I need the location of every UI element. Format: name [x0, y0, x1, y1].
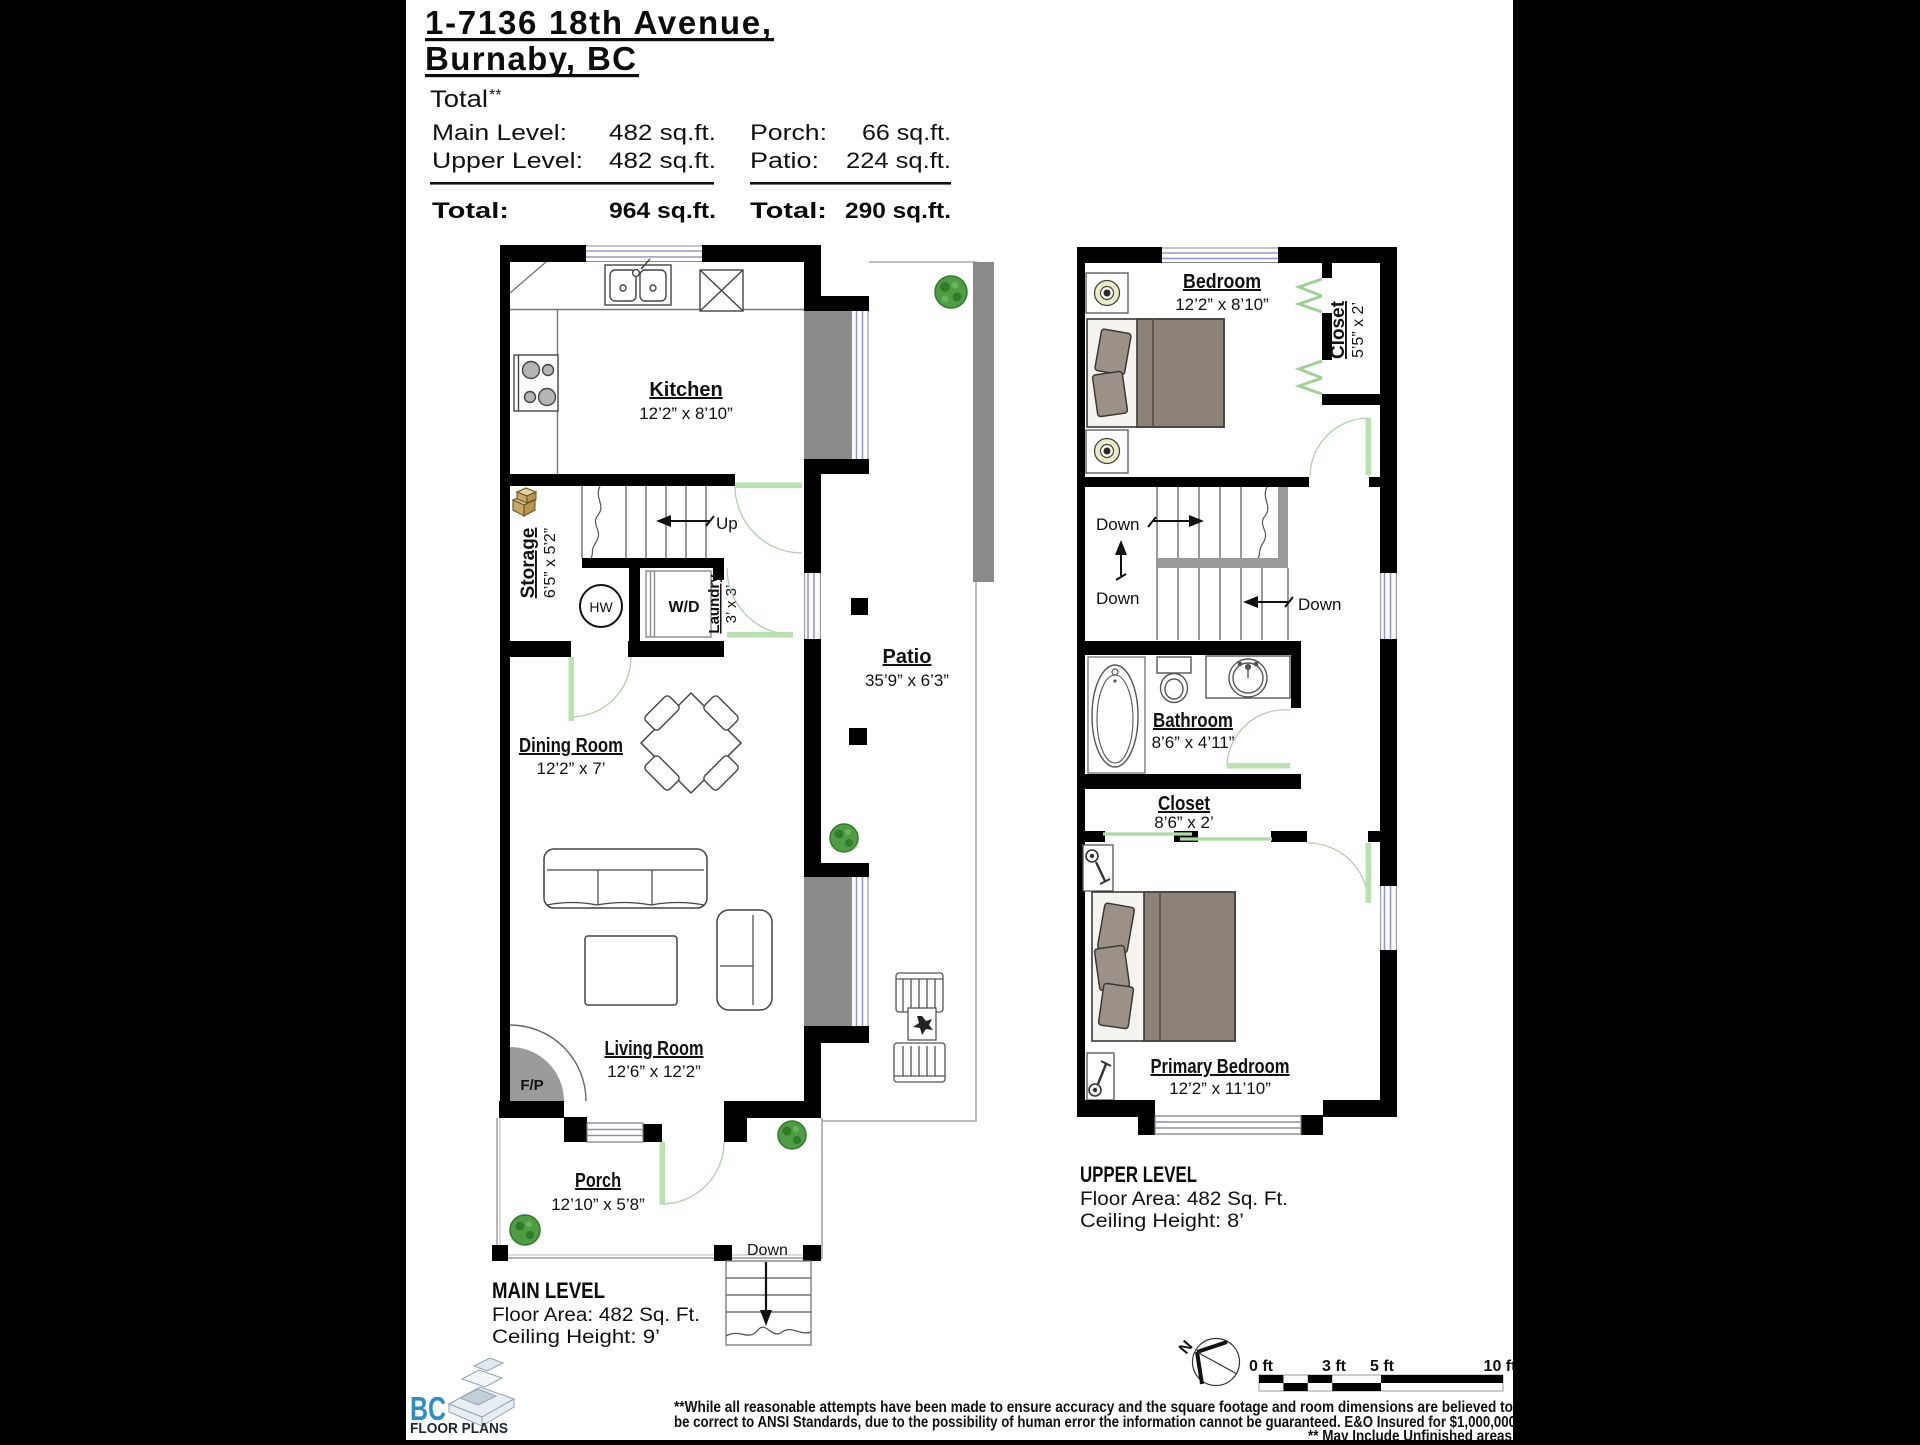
svg-text:1-7136 18th Avenue,: 1-7136 18th Avenue, — [425, 4, 771, 41]
svg-text:Living Room: Living Room — [605, 1038, 704, 1060]
svg-text:8’6” x 4’11”: 8’6” x 4’11” — [1152, 733, 1235, 752]
svg-text:8’6” x 2’: 8’6” x 2’ — [1154, 813, 1214, 832]
svg-text:HW: HW — [589, 599, 613, 615]
svg-text:12’2” x 8’10”: 12’2” x 8’10” — [639, 404, 733, 423]
svg-text:**: ** — [489, 87, 501, 104]
svg-text:Upper Level:: Upper Level: — [432, 148, 583, 173]
svg-text:5 ft: 5 ft — [1370, 1358, 1395, 1375]
svg-text:12’2” x 7’: 12’2” x 7’ — [537, 759, 606, 778]
svg-text:Floor Area: 482 Sq. Ft.: Floor Area: 482 Sq. Ft. — [1080, 1189, 1288, 1210]
svg-text:Dining Room: Dining Room — [519, 735, 623, 757]
svg-text:Patio:: Patio: — [750, 148, 819, 173]
svg-text:482 sq.ft.: 482 sq.ft. — [609, 120, 716, 145]
svg-text:Down: Down — [1298, 595, 1341, 614]
svg-text:UPPER LEVEL: UPPER LEVEL — [1080, 1162, 1197, 1187]
svg-text:Porch:: Porch: — [750, 120, 827, 145]
svg-text:** May Include Unfinished area: ** May Include Unfinished areas — [1308, 1428, 1512, 1440]
svg-text:Up: Up — [716, 514, 738, 533]
svg-text:Primary Bedroom: Primary Bedroom — [1151, 1056, 1290, 1078]
svg-text:66 sq.ft.: 66 sq.ft. — [862, 120, 951, 145]
svg-text:Total: Total — [430, 86, 488, 113]
svg-text:Ceiling Height: 8’: Ceiling Height: 8’ — [1080, 1211, 1244, 1232]
svg-text:Bedroom: Bedroom — [1183, 271, 1261, 293]
svg-text:12’2” x 11’10”: 12’2” x 11’10” — [1169, 1079, 1271, 1098]
svg-text:35’9” x 6’3”: 35’9” x 6’3” — [865, 671, 949, 690]
svg-text:FLOOR PLANS: FLOOR PLANS — [410, 1421, 508, 1437]
svg-text:Main Level:: Main Level: — [432, 120, 567, 145]
svg-text:6’5” x 5’2”: 6’5” x 5’2” — [542, 528, 559, 598]
svg-text:Down: Down — [747, 1242, 788, 1259]
svg-text:482 sq.ft.: 482 sq.ft. — [609, 148, 716, 173]
svg-text:224 sq.ft.: 224 sq.ft. — [846, 148, 951, 173]
svg-text:Kitchen: Kitchen — [649, 379, 722, 401]
svg-text:12’2” x 8’10”: 12’2” x 8’10” — [1175, 295, 1269, 314]
svg-text:Porch: Porch — [575, 1170, 621, 1192]
svg-text:Storage: Storage — [518, 528, 539, 599]
svg-text:Closet: Closet — [1328, 300, 1349, 359]
svg-text:Down: Down — [1096, 589, 1139, 608]
svg-text:Total:: Total: — [432, 198, 509, 223]
svg-text:0 ft: 0 ft — [1249, 1358, 1274, 1375]
svg-text:12’6” x 12’2”: 12’6” x 12’2” — [607, 1062, 701, 1081]
svg-text:MAIN LEVEL: MAIN LEVEL — [492, 1278, 605, 1303]
svg-text:Floor Area: 482 Sq. Ft.: Floor Area: 482 Sq. Ft. — [492, 1305, 700, 1326]
svg-text:12’10” x 5’8”: 12’10” x 5’8” — [551, 1195, 645, 1214]
svg-text:290 sq.ft.: 290 sq.ft. — [845, 198, 951, 223]
svg-text:F/P: F/P — [520, 1077, 543, 1094]
svg-text:Burnaby, BC: Burnaby, BC — [425, 40, 636, 77]
svg-text:3 ft: 3 ft — [1322, 1358, 1347, 1375]
svg-text:W/D: W/D — [668, 599, 699, 616]
svg-text:10 ft: 10 ft — [1484, 1358, 1518, 1375]
svg-text:Total:: Total: — [750, 198, 827, 223]
svg-text:964 sq.ft.: 964 sq.ft. — [609, 198, 716, 223]
svg-text:Down: Down — [1096, 515, 1139, 534]
svg-text:Ceiling Height: 9’: Ceiling Height: 9’ — [492, 1327, 660, 1348]
svg-text:Laundry: Laundry — [706, 574, 723, 634]
svg-text:5’5” x 2’: 5’5” x 2’ — [1350, 302, 1367, 358]
svg-text:Bathroom: Bathroom — [1153, 710, 1233, 732]
svg-text:Patio: Patio — [883, 646, 932, 668]
svg-text:Closet: Closet — [1158, 793, 1210, 815]
